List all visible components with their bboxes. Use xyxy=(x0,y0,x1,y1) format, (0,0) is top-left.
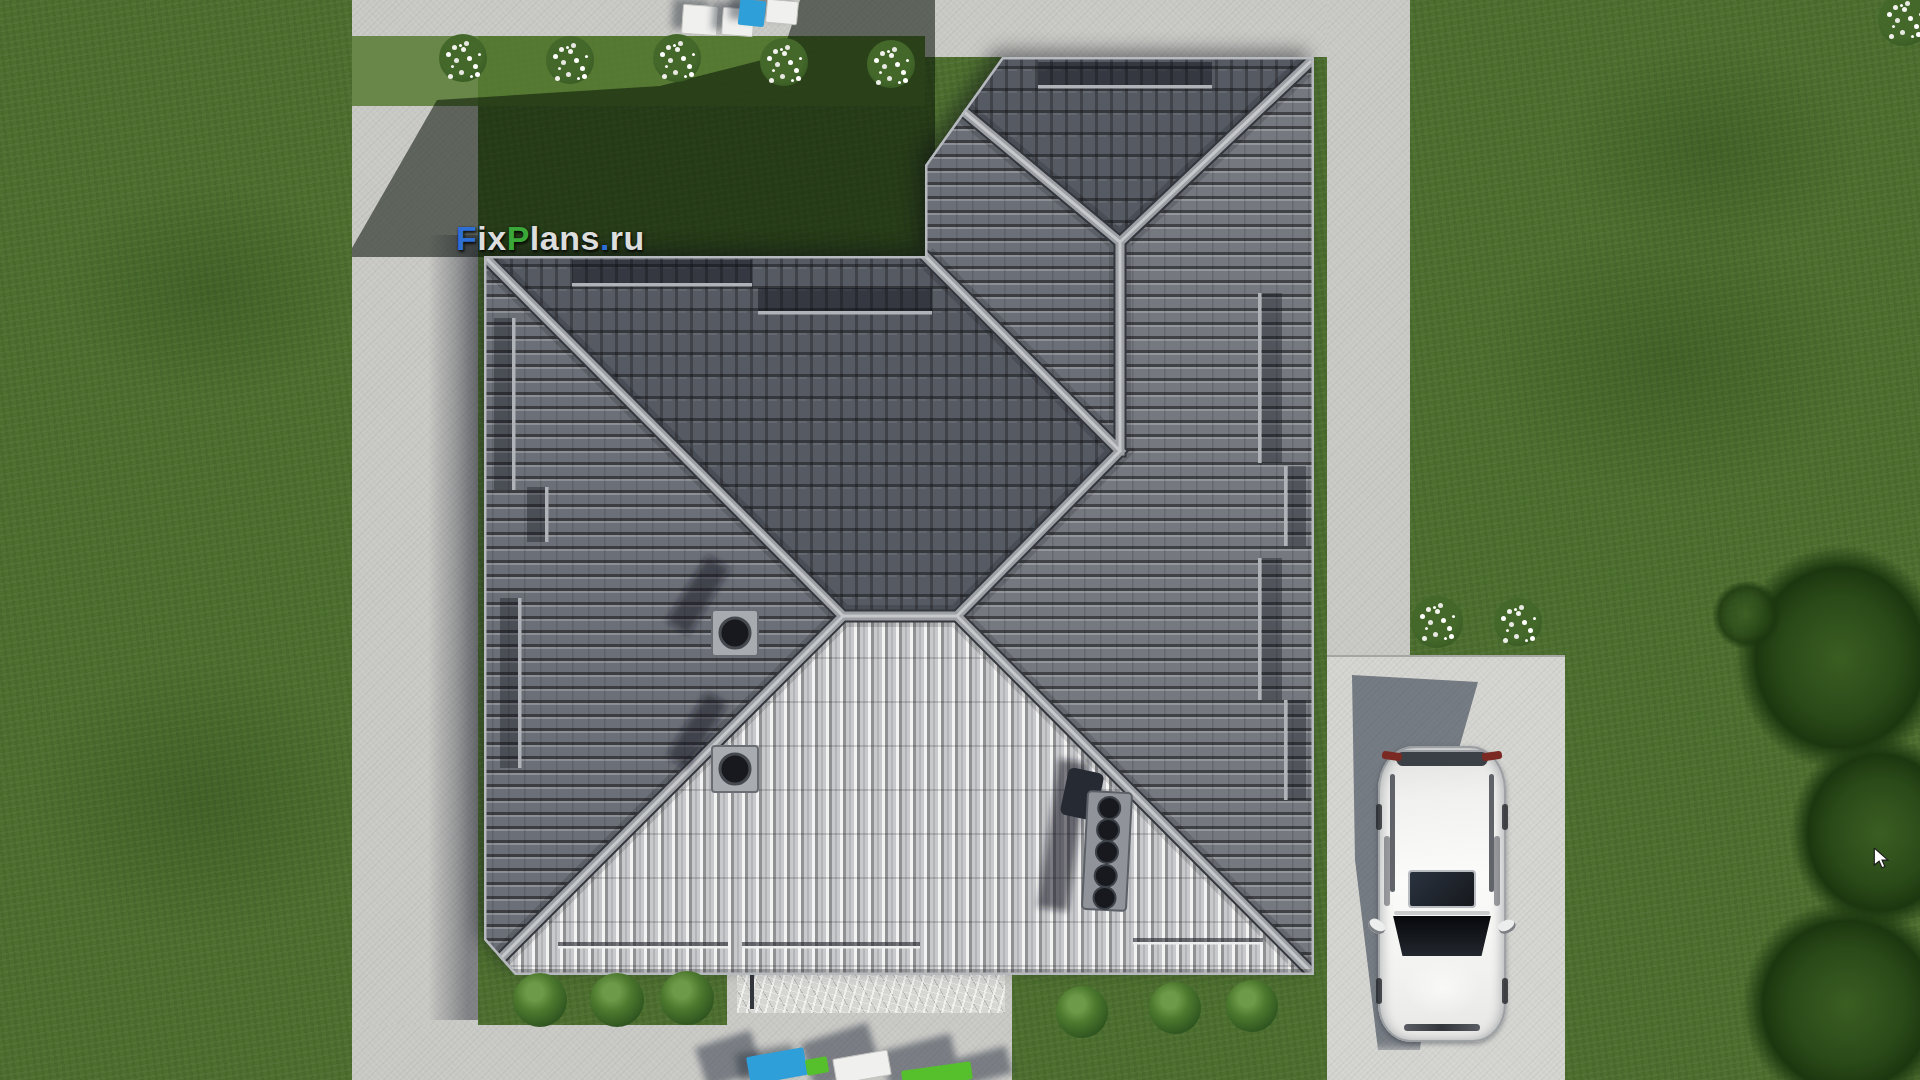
flower-bush xyxy=(760,38,808,86)
stone-paving-strip xyxy=(737,975,1005,1013)
shrub xyxy=(1226,980,1278,1032)
lawn-blotch xyxy=(1560,40,1860,260)
shrub xyxy=(590,973,644,1027)
car-side-glass xyxy=(1494,836,1500,906)
watermark-letter: ru xyxy=(610,219,645,257)
watermark-logo: FixPlans.ru xyxy=(456,219,645,258)
car-windshield xyxy=(1390,916,1494,956)
flower-bush xyxy=(1411,596,1463,648)
flower-bush xyxy=(653,34,701,82)
car-sunroof xyxy=(1408,870,1476,908)
flower-bush xyxy=(1494,598,1542,646)
shrub xyxy=(1056,986,1108,1038)
car-wheel xyxy=(1376,978,1382,1004)
watermark-letter: lans xyxy=(530,219,600,257)
car-rear-window xyxy=(1396,750,1488,766)
car-wheel xyxy=(1502,978,1508,1004)
downspout xyxy=(750,975,754,1009)
garden-furniture-white xyxy=(681,4,719,36)
aerial-render-scene: FixPlans.ru xyxy=(0,0,1920,1080)
car-roof-rail xyxy=(1390,774,1395,892)
car-wheel xyxy=(1376,804,1382,830)
car-side-glass xyxy=(1384,836,1390,906)
white-suv-car xyxy=(1374,740,1510,1046)
watermark-letter: F xyxy=(456,219,477,257)
shrub xyxy=(1149,982,1201,1034)
watermark-letter: ix xyxy=(477,219,506,257)
watermark-letter: P xyxy=(507,219,530,257)
lawn-blotch xyxy=(30,660,370,940)
concrete-path-right xyxy=(1327,0,1410,660)
lawn-blotch xyxy=(1480,220,1860,500)
flower-bush xyxy=(546,36,594,84)
car-taillight xyxy=(1482,751,1503,762)
shrub xyxy=(513,973,567,1027)
garden-furniture-blue xyxy=(738,0,767,27)
flower-bush xyxy=(439,34,487,82)
shrub xyxy=(660,971,714,1025)
car-grille xyxy=(1404,1024,1480,1031)
lawn-blotch xyxy=(60,180,360,400)
mouse-cursor-icon xyxy=(1872,848,1892,870)
house-shadow-left-path xyxy=(428,235,478,1020)
watermark-letter: . xyxy=(600,219,610,257)
tree-canopy xyxy=(1712,580,1782,650)
car-hood xyxy=(1404,960,1480,1016)
garden-furniture-white xyxy=(765,0,799,25)
car-cowl xyxy=(1394,911,1490,915)
flower-bush xyxy=(867,40,915,88)
car-taillight xyxy=(1382,751,1403,762)
car-wheel xyxy=(1502,804,1508,830)
